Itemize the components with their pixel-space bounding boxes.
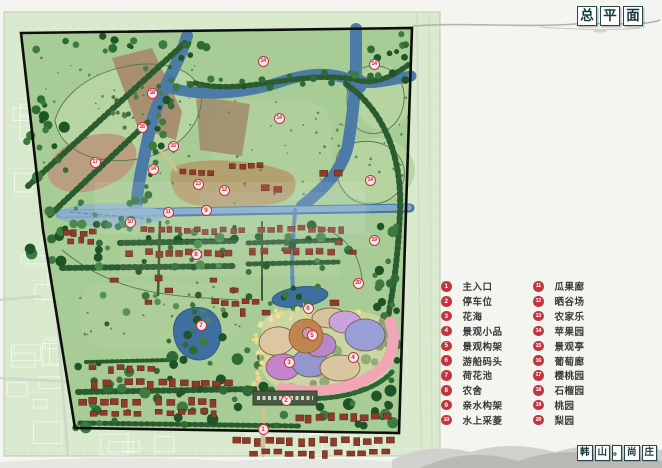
legend-number-badge: 1 [441,281,452,292]
legend-item-9: 9亲水构架 [441,398,503,413]
map-marker-11: 11 [163,207,174,218]
legend-label: 花海 [463,309,483,323]
legend-label: 瓜果廊 [555,279,585,293]
legend-number-badge: 2 [441,296,452,307]
master-plan-page: 总平面 1主入口2停车位3花海4景观小品5景观构架6游船码头7荷花池8农舍9亲水… [0,0,662,468]
legend-number-badge: 14 [533,326,544,337]
footer-char: 韩 [577,445,593,461]
watermark [95,182,370,276]
map-marker-17: 17 [90,157,101,168]
legend-number-badge: 11 [533,281,544,292]
legend-item-10: 10水上采菱 [441,413,503,428]
legend-item-2: 2停车位 [441,294,503,309]
legend-label: 主入口 [463,279,493,293]
map-marker-14: 14 [274,113,285,124]
legend-item-12: 12晒谷场 [533,294,585,309]
legend-label: 游船码头 [463,354,503,368]
legend-number-badge: 17 [533,370,544,381]
map-marker-1: 1 [258,424,269,435]
legend-item-4: 4景观小品 [441,324,503,339]
title-char: 总 [577,6,597,26]
legend-item-18: 18石榴园 [533,383,585,398]
map-marker-6: 6 [303,303,314,314]
map-marker-14: 14 [258,56,269,67]
legend-item-7: 7荷花池 [441,368,503,383]
legend-label: 樱桃园 [555,368,585,382]
map-marker-14: 14 [148,164,159,175]
title-char: 面 [623,6,643,26]
legend-label: 晒谷场 [555,294,585,308]
map-marker-10: 10 [125,217,136,228]
legend-label: 农家乐 [555,309,585,323]
map-marker-5: 5 [307,330,318,341]
legend-label: 景观小品 [463,324,503,338]
legend-column-2: 11瓜果廊12晒谷场13农家乐14苹果园15景观亭16葡萄廊17樱桃园18石榴园… [533,279,585,427]
map-marker-7: 7 [196,320,207,331]
legend-number-badge: 4 [441,326,452,337]
legend-label: 停车位 [463,294,493,308]
map-marker-15: 15 [168,141,179,152]
legend-label: 荷花池 [463,368,493,382]
map-marker-4: 4 [348,352,359,363]
legend-number-badge: 20 [533,415,544,426]
map-marker-20: 20 [353,278,364,289]
footer-char: 山 [595,445,611,461]
legend-number-badge: 16 [533,355,544,366]
legend-number-badge: 12 [533,296,544,307]
legend-item-3: 3花海 [441,309,503,324]
legend-item-1: 1主入口 [441,279,503,294]
legend-label: 景观构架 [463,339,503,353]
legend-number-badge: 10 [441,415,452,426]
map-marker-2: 2 [281,395,292,406]
legend-number-badge: 15 [533,341,544,352]
legend-item-20: 20梨园 [533,413,585,428]
legend-column-1: 1主入口2停车位3花海4景观小品5景观构架6游船码头7荷花池8农舍9亲水构架10… [441,279,503,427]
legend-item-11: 11瓜果廊 [533,279,585,294]
legend-item-15: 15景观亭 [533,338,585,353]
footer-char: 。 [612,445,622,461]
legend-label: 石榴园 [555,383,585,397]
map-marker-14: 14 [365,175,376,186]
legend-label: 景观亭 [555,339,585,353]
legend-number-badge: 9 [441,400,452,411]
legend-label: 苹果园 [555,324,585,338]
legend-item-17: 17樱桃园 [533,368,585,383]
plan-title: 总平面 [577,6,646,26]
map-marker-9: 9 [201,205,212,216]
map-marker-12: 12 [219,185,230,196]
footer-char: 尚 [624,445,640,461]
legend-item-6: 6游船码头 [441,353,503,368]
legend-number-badge: 7 [441,370,452,381]
legend-number-badge: 13 [533,311,544,322]
legend-item-16: 16葡萄廊 [533,353,585,368]
map-marker-18: 18 [147,88,158,99]
legend-label: 亲水构架 [463,398,503,412]
legend-label: 葡萄廊 [555,354,585,368]
legend-item-13: 13农家乐 [533,309,585,324]
map-marker-13: 13 [193,179,204,190]
legend-item-5: 5景观构架 [441,338,503,353]
legend-number-badge: 3 [441,311,452,322]
title-char: 平 [600,6,620,26]
map-marker-8: 8 [191,249,202,260]
legend-label: 梨园 [555,413,575,427]
legend-label: 桃园 [555,398,575,412]
footer-char: 庄 [642,445,658,461]
legend-number-badge: 19 [533,400,544,411]
legend-number-badge: 6 [441,355,452,366]
legend-label: 农舍 [463,383,483,397]
map-marker-16: 16 [137,122,148,133]
map-marker-14: 14 [369,59,380,70]
legend-number-badge: 5 [441,341,452,352]
legend-number-badge: 18 [533,385,544,396]
project-name: 韩山。尚庄 [577,445,659,461]
legend-item-19: 19桃园 [533,398,585,413]
map-marker-3: 3 [284,357,295,368]
legend-number-badge: 8 [441,385,452,396]
legend-label: 水上采菱 [463,413,503,427]
legend-item-14: 14苹果园 [533,324,585,339]
map-marker-19: 19 [369,235,380,246]
legend-item-8: 8农舍 [441,383,503,398]
